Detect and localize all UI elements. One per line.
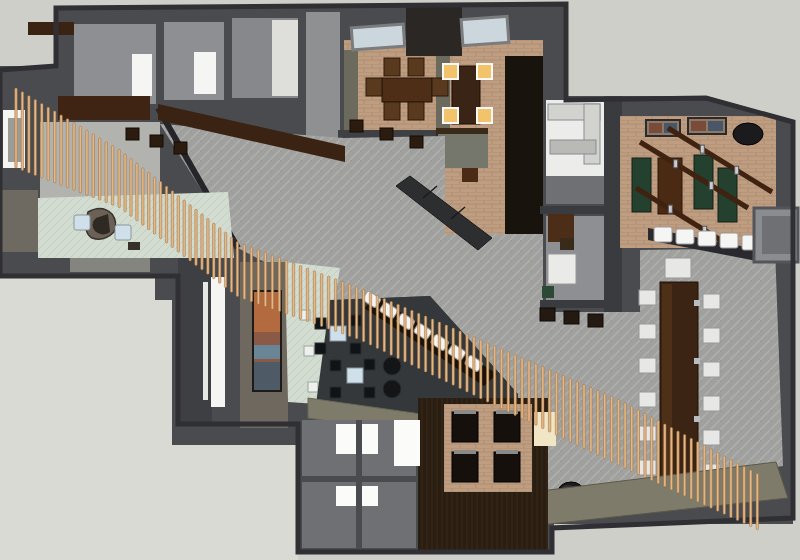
- booth-seat: [452, 412, 478, 442]
- wood-slat: [650, 417, 652, 481]
- wood-slat: [756, 474, 758, 530]
- shadow-corridor: [505, 56, 543, 236]
- booth-back: [496, 450, 518, 454]
- wood-slat: [278, 258, 280, 312]
- wood-slat: [459, 331, 461, 389]
- wood-slat: [264, 252, 266, 306]
- wood-slat: [569, 379, 571, 443]
- wood-slat: [171, 191, 173, 248]
- booth-seat: [452, 452, 478, 482]
- wood-slat: [610, 396, 612, 462]
- wood-slat: [480, 340, 482, 399]
- wood-slat: [514, 355, 516, 416]
- wood-slat: [576, 381, 578, 445]
- wood-slat: [341, 281, 343, 333]
- dining-table-1: [382, 78, 432, 102]
- dining-chair: [384, 58, 400, 76]
- lounge-chair: [330, 360, 341, 371]
- lounge-chair: [364, 359, 375, 370]
- office-chair: [560, 238, 574, 250]
- wood-slat: [54, 111, 56, 183]
- wood-slat: [445, 325, 447, 382]
- wood-slat: [213, 223, 215, 279]
- wood-slat: [201, 214, 203, 270]
- booth-seat: [494, 452, 520, 482]
- wood-slat: [195, 209, 197, 265]
- wood-slat: [28, 96, 30, 173]
- exterior-plaza-2: [176, 426, 298, 560]
- wood-slat: [306, 268, 308, 321]
- wood-slat: [542, 367, 544, 429]
- wood-slat: [189, 205, 191, 261]
- beam-cleat: [735, 166, 739, 174]
- exterior-plaza: [0, 278, 176, 560]
- dining-chair: [639, 358, 656, 373]
- lit-dining-chair: [477, 64, 492, 79]
- wood-slat: [313, 271, 315, 324]
- counter-stool: [720, 233, 738, 248]
- server-station: [438, 134, 488, 168]
- skylight: [351, 24, 404, 50]
- wood-slat: [590, 387, 592, 452]
- wood-slat: [411, 310, 413, 365]
- wood-slat: [230, 237, 232, 292]
- ottoman: [383, 380, 401, 398]
- booth-back: [454, 410, 476, 414]
- wood-slat: [730, 460, 732, 518]
- wood-slat: [105, 142, 107, 203]
- skylight-2: [461, 16, 509, 45]
- dining-chair: [703, 294, 720, 309]
- booth-back: [454, 450, 476, 454]
- beam-cleat: [709, 182, 713, 190]
- wood-slat: [500, 349, 502, 409]
- stool: [540, 308, 555, 321]
- ottoman: [383, 357, 401, 375]
- wood-slat: [631, 406, 633, 471]
- dining-chair: [639, 426, 656, 441]
- beam-cleat: [674, 160, 678, 168]
- dining-chair: [639, 460, 656, 475]
- lit-dining-chair: [443, 108, 458, 123]
- wood-slat: [583, 384, 585, 448]
- dining-chair: [703, 328, 720, 343]
- wood-slat: [320, 274, 322, 327]
- dining-chair: [432, 78, 448, 96]
- wood-slat: [703, 445, 705, 505]
- picture-art: [708, 121, 723, 131]
- wood-slat: [644, 413, 646, 477]
- dark-roof-section: [406, 6, 462, 56]
- wood-slat: [717, 452, 719, 511]
- stool: [564, 311, 579, 324]
- dining-chair: [384, 102, 400, 120]
- wood-slat: [79, 126, 81, 192]
- wood-slat: [348, 284, 350, 336]
- wood-slat: [677, 431, 679, 493]
- wood-slat: [165, 186, 167, 243]
- lounge-table: [347, 368, 363, 383]
- wood-slat: [487, 343, 489, 402]
- booth-block: [302, 398, 556, 550]
- light-panel: [211, 277, 225, 407]
- side-table: [174, 142, 187, 154]
- wood-slat: [285, 260, 287, 314]
- wood-slat: [118, 149, 120, 207]
- lounge-chair: [364, 387, 375, 398]
- wood-slat: [431, 319, 433, 375]
- wood-slat: [597, 390, 599, 455]
- light-panel-2: [203, 282, 208, 400]
- wood-slat: [334, 279, 336, 332]
- wood-slat: [438, 322, 440, 379]
- wood-slat: [92, 134, 94, 198]
- counter-stool: [698, 231, 716, 246]
- dining-chair: [408, 102, 424, 120]
- wood-slat: [159, 182, 161, 239]
- dining-chair: [639, 392, 656, 407]
- wood-slat: [624, 403, 626, 469]
- beam-cleat: [700, 145, 704, 153]
- wood-slat: [224, 232, 226, 287]
- wood-slat: [452, 328, 454, 385]
- dining-chair: [703, 362, 720, 377]
- plant-scatter: [128, 242, 140, 250]
- wood-slat: [15, 88, 17, 168]
- wood-slat: [362, 290, 364, 342]
- wood-slat: [47, 107, 49, 180]
- drum: [733, 123, 763, 145]
- head-chair: [665, 258, 691, 278]
- counter-stool: [654, 227, 672, 242]
- wood-slat: [528, 361, 530, 422]
- stool: [462, 168, 478, 182]
- vestibule-floor: [762, 216, 792, 254]
- lit-dining-chair: [443, 64, 458, 79]
- wood-slat: [657, 421, 659, 484]
- skylight-panel-2: [394, 420, 420, 466]
- wood-slat: [535, 364, 537, 426]
- wood-slat: [507, 352, 509, 412]
- wood-slat: [153, 177, 155, 234]
- side-table: [304, 346, 314, 356]
- wood-slat: [369, 293, 371, 346]
- wood-slat: [183, 200, 185, 256]
- wood-slat: [690, 438, 692, 499]
- wood-slat: [243, 244, 245, 299]
- picture-art: [649, 123, 662, 133]
- office: [542, 214, 604, 300]
- wood-slat: [299, 266, 301, 320]
- wood-slat: [670, 428, 672, 490]
- dining-chair: [703, 430, 720, 445]
- wood-slat: [250, 247, 252, 302]
- wood-slat: [34, 100, 36, 176]
- wood-slat: [743, 467, 745, 524]
- wood-slat: [637, 410, 639, 475]
- wood-slat: [604, 393, 606, 458]
- wood-slat: [397, 304, 399, 358]
- side-table: [150, 135, 163, 147]
- office-desk: [548, 214, 574, 242]
- lit-dining-chair: [477, 108, 492, 123]
- green-chair: [542, 286, 554, 298]
- wood-slat: [219, 228, 221, 284]
- wood-slat: [376, 295, 378, 348]
- floor-plan-canvas: [0, 0, 800, 560]
- wood-slat: [292, 263, 294, 317]
- lounge-chair: [315, 343, 326, 354]
- back-bar-counter: [58, 96, 150, 120]
- reception-table: [115, 225, 131, 240]
- wood-slat: [750, 470, 752, 526]
- wood-slat: [383, 298, 385, 351]
- dining-chair: [639, 324, 656, 339]
- stool: [588, 314, 603, 327]
- dining-chair: [639, 290, 656, 305]
- wood-slat: [111, 146, 113, 206]
- wood-slat: [99, 138, 101, 200]
- wood-slat: [41, 103, 43, 177]
- wood-slat: [327, 276, 329, 329]
- lounge-chair: [330, 387, 341, 398]
- booth-seat: [494, 412, 520, 442]
- wood-slat: [355, 287, 357, 339]
- lounge-chair: [350, 343, 361, 354]
- wood-slat: [736, 463, 738, 521]
- wood-slat: [60, 115, 62, 185]
- wood-slat: [130, 159, 132, 217]
- wood-slat: [177, 196, 179, 253]
- wood-slat: [66, 119, 68, 188]
- counter-stool: [676, 229, 694, 244]
- wood-slat: [390, 301, 392, 355]
- green-bench: [632, 158, 651, 212]
- dining-chair: [366, 78, 382, 96]
- wood-slat: [21, 92, 23, 171]
- wood-slat: [148, 172, 150, 229]
- wood-slat: [710, 449, 712, 508]
- side-table: [380, 128, 393, 140]
- wood-slat: [683, 435, 685, 496]
- wood-slat: [723, 456, 725, 514]
- wood-slat: [466, 334, 468, 392]
- wood-slat: [236, 242, 238, 297]
- wood-slat: [142, 168, 144, 225]
- wood-slat: [73, 123, 75, 191]
- wood-slat: [418, 313, 420, 368]
- wood-slat: [562, 376, 564, 439]
- office-sofa: [548, 254, 576, 284]
- side-table: [410, 136, 423, 148]
- wood-slat: [207, 219, 209, 275]
- wood-slat: [473, 337, 475, 396]
- dining-chair: [703, 396, 720, 411]
- wood-slat: [521, 358, 523, 419]
- wood-slat: [548, 370, 550, 433]
- wood-slat: [424, 316, 426, 372]
- kitchen-island: [550, 140, 596, 154]
- floor-plan-render: [0, 0, 800, 560]
- dining-chair: [408, 58, 424, 76]
- beam-cleat: [668, 205, 672, 213]
- wood-slat: [271, 255, 273, 309]
- wood-slat: [697, 442, 699, 502]
- wood-slat: [404, 307, 406, 362]
- roof-beam: [28, 22, 74, 35]
- wood-slat: [493, 346, 495, 406]
- wood-slat: [664, 424, 666, 487]
- wood-slat: [617, 399, 619, 465]
- wood-slat: [257, 250, 259, 305]
- wood-slat: [124, 154, 126, 212]
- side-table: [308, 382, 318, 392]
- wood-slat: [555, 373, 557, 436]
- picture-art: [691, 121, 706, 131]
- wood-slat: [86, 130, 88, 195]
- side-table: [350, 120, 363, 132]
- reception-table: [74, 215, 90, 230]
- wood-slat: [136, 163, 138, 221]
- side-table: [126, 128, 139, 140]
